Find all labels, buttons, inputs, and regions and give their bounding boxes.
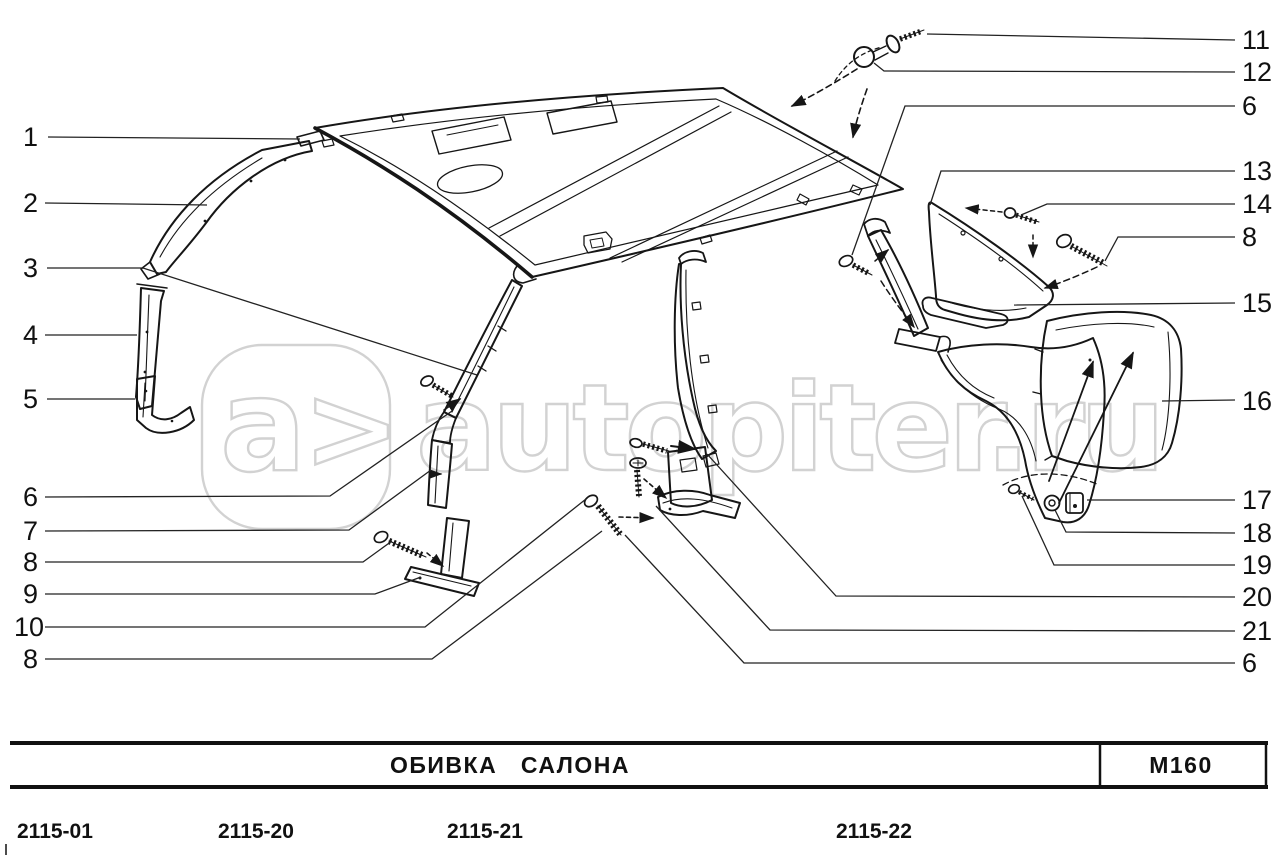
callout-number: 9 <box>23 579 38 609</box>
leader-8-bottom <box>45 531 602 659</box>
variant-code: 2115-22 <box>836 820 912 843</box>
variant-codes-row: 2115-01 2115-20 2115-21 2115-22 <box>6 820 912 855</box>
leader-9 <box>45 577 421 594</box>
leader-14 <box>1021 204 1235 215</box>
callout-number: 10 <box>14 612 44 642</box>
watermark-brand-text: autopiter.ru <box>416 360 1160 499</box>
callout-number: 15 <box>1242 288 1272 318</box>
callout-number: 4 <box>23 320 38 350</box>
callout-number: 5 <box>23 384 38 414</box>
callout-number: 14 <box>1242 189 1272 219</box>
leader-1 <box>48 137 300 139</box>
leader-2 <box>45 203 207 205</box>
c-pillar-trim-drawing <box>864 219 950 352</box>
screw-icon <box>582 493 621 535</box>
callout-number: 12 <box>1242 57 1272 87</box>
leader-16 <box>1162 400 1235 401</box>
callout-number: 6 <box>1242 91 1257 121</box>
leader-13 <box>930 171 1235 205</box>
leader-21 <box>656 506 1235 631</box>
watermark: a > autopiter.ru <box>202 345 1160 529</box>
headliner-panel-drawing <box>315 88 903 283</box>
callout-number: 19 <box>1242 550 1272 580</box>
leader-8-right <box>1105 237 1235 261</box>
callout-number: 17 <box>1242 485 1272 515</box>
callout-number: 16 <box>1242 386 1272 416</box>
rear-window-frame-trim-drawing <box>922 202 1052 328</box>
callout-number: 8 <box>23 644 38 674</box>
callout-number: 18 <box>1242 518 1272 548</box>
leader-10 <box>45 499 586 627</box>
callout-number: 11 <box>1242 25 1270 55</box>
variant-code: 2115-01 <box>17 820 93 843</box>
callout-number: 3 <box>23 253 38 283</box>
callout-labels: 1 2 3 4 5 6 7 8 9 10 8 11 12 6 13 14 8 1… <box>14 25 1272 678</box>
leader-6-bottom <box>625 535 1235 663</box>
callout-number: 13 <box>1242 156 1272 186</box>
screw-icon <box>373 529 426 557</box>
callout-number: 2 <box>23 188 38 218</box>
leader-8-left <box>45 541 392 562</box>
callout-number: 7 <box>23 516 38 546</box>
b-pillar-lower-trim-left-drawing <box>405 518 479 596</box>
callout-number: 1 <box>23 122 38 152</box>
callout-number: 8 <box>23 547 38 577</box>
callout-number: 20 <box>1242 582 1272 612</box>
watermark-domain-suffix: .ru <box>985 360 1160 499</box>
parts-diagram-canvas: a > autopiter.ru <box>0 0 1275 855</box>
variant-code: 2115-21 <box>447 820 523 843</box>
callout-number: 8 <box>1242 222 1257 252</box>
sheet-title: ОБИВКА САЛОНА <box>390 752 630 778</box>
leader-12 <box>874 63 1235 72</box>
screw-icon <box>838 254 872 275</box>
sheet-code: M160 <box>1149 752 1213 778</box>
roof-fastener-screw-icon <box>854 30 924 67</box>
watermark-logo-letter: a <box>220 352 306 501</box>
leader-11 <box>927 34 1235 40</box>
title-block: ОБИВКА САЛОНА M160 <box>10 743 1268 787</box>
screw-icon <box>1055 232 1107 266</box>
a-pillar-trim-drawing <box>136 284 167 409</box>
exploded-drawing <box>136 30 1182 596</box>
catalog-sheet: a > autopiter.ru <box>0 0 1275 855</box>
watermark-brand: autopiter <box>416 360 1007 499</box>
callout-number: 6 <box>23 482 38 512</box>
watermark-logo-chevron: > <box>303 361 400 496</box>
callout-number: 21 <box>1242 616 1272 646</box>
leader-19 <box>1022 496 1235 565</box>
leader-6-top <box>852 106 1235 255</box>
variant-code: 2115-20 <box>218 820 294 843</box>
callout-number: 6 <box>1242 648 1257 678</box>
